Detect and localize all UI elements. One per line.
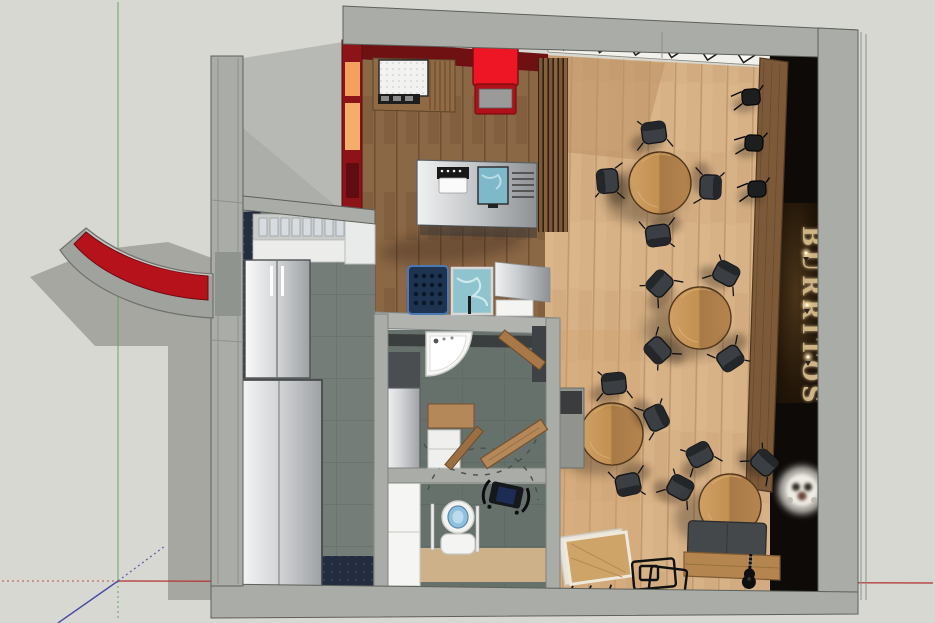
steel-splash-panel <box>495 262 550 302</box>
entrance-door-recess[interactable] <box>215 252 241 316</box>
slat-partition[interactable] <box>538 58 568 232</box>
refrigerator-upper[interactable] <box>245 260 310 378</box>
grab-bar[interactable] <box>476 506 479 552</box>
red-wall-recess <box>346 163 359 198</box>
service-counter[interactable] <box>417 160 537 238</box>
refrigerator-large[interactable] <box>236 380 322 586</box>
prep-table-griddle[interactable] <box>373 58 455 112</box>
model-viewport[interactable]: BURRITOS BURRITOS <box>0 0 935 623</box>
orange-panel <box>345 103 360 150</box>
glass-shelf[interactable] <box>253 214 350 262</box>
toilet[interactable] <box>441 501 475 554</box>
bench-sofa[interactable] <box>687 521 766 558</box>
order-screen[interactable] <box>478 167 508 208</box>
white-box <box>496 300 533 316</box>
pass-counter-white[interactable] <box>345 220 375 264</box>
cash-register[interactable] <box>437 167 469 193</box>
stage-platform[interactable] <box>684 552 780 580</box>
orange-panel <box>345 62 360 96</box>
grab-bar[interactable] <box>431 504 434 550</box>
bottle-crate[interactable] <box>408 266 448 314</box>
red-food-cart[interactable] <box>473 40 518 114</box>
bath-shelf[interactable] <box>428 404 474 428</box>
right-wall <box>818 28 858 602</box>
glass-panel[interactable] <box>452 268 492 314</box>
